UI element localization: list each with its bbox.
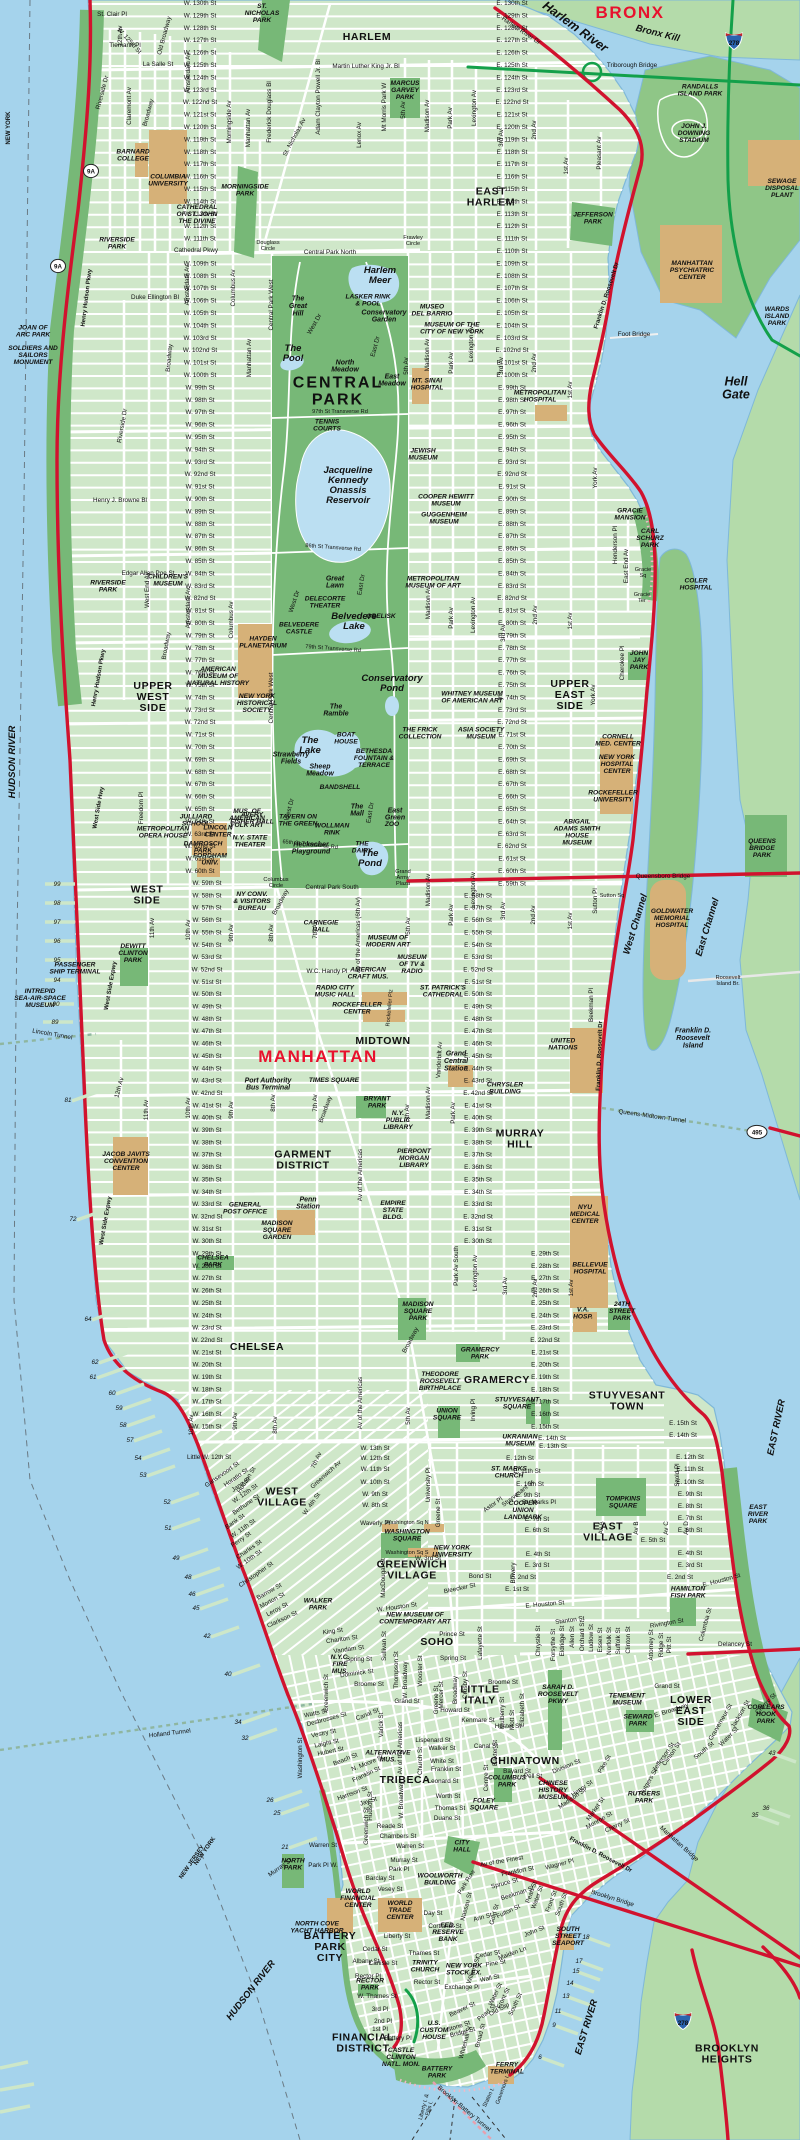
map-label: E. 22nd St [530, 1337, 560, 1344]
map-label: Walker St [428, 1745, 455, 1752]
map-label: Av B [633, 1521, 640, 1534]
map-label: GRACIEMANSION [614, 508, 645, 522]
map-label: BROOKLYNHEIGHTS [695, 2043, 759, 2066]
map-label: Park Av [448, 351, 455, 373]
map-label: WORLDFINANCIALCENTER [340, 1888, 376, 1909]
map-label: CHINATOWN [490, 1755, 560, 1767]
map-label: E. 82nd St [497, 595, 527, 602]
map-label: 3rd Pl [372, 2006, 388, 2013]
map-label: W. 26th St [192, 1288, 221, 1295]
map-label: W. 122nd St [183, 99, 218, 106]
map-label: E. 113th St [497, 211, 528, 218]
map-label: WHITNEY MUSEUMOF AMERICAN ART [441, 691, 503, 705]
map-label: W. 25th St [192, 1300, 221, 1307]
map-label: Lexington Av [471, 89, 478, 126]
map-label: W. Thames St [357, 1993, 397, 2000]
map-label: W. 75th St [185, 682, 214, 689]
map-label: W. 45th St [192, 1053, 221, 1060]
map-label: 5th Av [405, 916, 412, 934]
map-label: E. 55th St [464, 929, 492, 936]
map-label: W. 72nd St [185, 719, 216, 726]
map-label: Rector Pl [355, 1973, 381, 1980]
map-label: 54 [134, 1455, 142, 1462]
map-label: Orchard St [579, 1621, 586, 1652]
map-label: WARDSISLANDPARK [765, 306, 790, 327]
map-label: Av of the Americas [397, 1722, 404, 1774]
map-label: E. 129th St [496, 12, 527, 19]
map-label: W. 86th St [185, 546, 214, 553]
map-label: 49 [172, 1555, 180, 1562]
map-label: Warren St [396, 1843, 424, 1850]
map-label: Hester St [495, 1723, 521, 1730]
map-label: W. 82nd St [185, 595, 216, 602]
map-label: WOOLWORTHBUILDING [418, 1873, 463, 1887]
map-label: W. 37th St [192, 1152, 221, 1159]
map-label: E. 78th St [498, 645, 526, 652]
map-label: E. 103rd St [496, 335, 528, 342]
map-label: W. 57th St [192, 905, 221, 912]
map-label: 34 [234, 1719, 242, 1726]
map-label: Lenox Av [356, 121, 363, 148]
map-label: W. 20th St [192, 1362, 221, 1369]
map-label: GRAMERCY [464, 1374, 530, 1386]
map-label: W. 9th St [362, 1491, 388, 1498]
map-label: HUDSON RIVER [7, 725, 18, 798]
map-label: W. 61st St [186, 856, 215, 863]
map-label: W. 15th St [192, 1423, 221, 1430]
map-label: W. 54th St [192, 942, 221, 949]
map-label: 43 [768, 1750, 776, 1757]
map-label: W. 95th St [185, 434, 214, 441]
map-label: CHINESEHISTORYMUSEUM [538, 1780, 568, 1801]
map-label: Vesey St [378, 1886, 403, 1893]
map-label: E. 102nd St [496, 347, 529, 354]
map-label: E. 5th St [641, 1537, 665, 1544]
map-label: E. 35th St [464, 1176, 492, 1183]
map-label: JEWISHMUSEUM [408, 448, 438, 462]
map-label: W. 27th St [192, 1275, 221, 1282]
map-label: E. 108th St [496, 273, 527, 280]
map-label: W. 96th St [185, 422, 214, 429]
map-label: E. 44th St [464, 1065, 492, 1072]
map-label: Elizabeth St [519, 1693, 526, 1727]
map-label: Lexington Av [472, 1254, 479, 1291]
svg-text:495: 495 [752, 1129, 763, 1136]
map-label: E. 65th St [498, 806, 526, 813]
map-label: THEODOREROOSEVELTBIRTHPLACE [419, 1371, 462, 1392]
map-label: 11 [555, 2008, 562, 2015]
map-label: 8th Av [272, 1415, 279, 1433]
map-label: E. 10th St [676, 1479, 704, 1486]
map-label: W. 35th St [192, 1176, 221, 1183]
map-label: 12th Av [117, 25, 124, 47]
columbia-university-bldg [149, 130, 187, 204]
map-label: University Pl [425, 1468, 432, 1503]
map-label: W. 68th St [185, 769, 214, 776]
map-label: Forsythe St [550, 1629, 557, 1661]
map-label: Spring St [346, 1656, 372, 1663]
map-label: Park Av [450, 1101, 457, 1123]
map-label: Morningside Av [226, 100, 233, 144]
map-label: Cortlandt St [428, 1923, 461, 1930]
map-label: Liberty St [384, 1933, 411, 1940]
map-label: PIERPONTMORGANLIBRARY [397, 1148, 432, 1169]
map-label: Prince St [439, 1631, 465, 1638]
map-label: W.C. Handy Pl [307, 968, 348, 975]
map-label: E. 6th St [525, 1527, 549, 1534]
map-label: NORTH COVEYACHT HARBOR [291, 1921, 344, 1935]
map-label: 25 [272, 1810, 281, 1817]
map-label: BOATHOUSE [334, 732, 358, 746]
map-label: E. 124th St [496, 74, 527, 81]
map-label: St. Clair Pl [97, 11, 127, 18]
map-label: Central Park West [268, 279, 275, 330]
map-label: Freedom Pl [138, 792, 145, 825]
map-label: E. 12th St [506, 1455, 534, 1462]
map-label: HAMILTONFISH PARK [670, 1586, 706, 1600]
map-label: E. 37th St [464, 1152, 492, 1159]
map-label: Greene St [435, 1498, 442, 1527]
map-label: Murray St [390, 1857, 418, 1864]
map-label: W. 85th St [185, 558, 214, 565]
map-label: Canal St [474, 1743, 498, 1750]
map-label: Sutton Sq [600, 893, 625, 899]
manhattan-map[interactable]: BRONXMANHATTANHARLEMEASTHARLEMUPPERWESTS… [0, 0, 800, 2140]
svg-text:278: 278 [729, 40, 740, 47]
map-label: 8th Av [268, 923, 275, 941]
map-label: Park Pl W. [308, 1862, 338, 1869]
map-label: 7th Av [312, 920, 319, 938]
map-label: Washington St [297, 1737, 304, 1778]
map-label: WESTSIDE [131, 884, 164, 907]
map-label: MT. SINAIHOSPITAL [411, 378, 444, 392]
map-label: W. 33rd St [192, 1201, 222, 1208]
map-label: 97th St Transverse Rd [312, 409, 368, 415]
map-label: W. 48th St [192, 1016, 221, 1023]
map-label: TRINITYCHURCH [411, 1960, 440, 1974]
map-label: E. 80th St [498, 620, 526, 627]
map-label: W. 128th St [184, 25, 217, 32]
morningside-park [234, 166, 258, 258]
map-label: E. 118th St [497, 149, 528, 156]
map-label: E. 104th St [496, 322, 527, 329]
map-label: W. 60th St [185, 868, 214, 875]
map-label: Spring St [440, 1655, 466, 1662]
map-label: W. 80th St [185, 620, 214, 627]
map-label: 2nd Av [532, 605, 539, 625]
map-label: E. 14th St [538, 1435, 566, 1442]
map-label: UNITEDNATIONS [548, 1038, 578, 1052]
map-label: E. 86th St [498, 546, 526, 553]
map-label: E. 119th St [497, 136, 528, 143]
map-label: UKRANIANMUSEUM [502, 1434, 537, 1448]
map-label: Park Av [448, 903, 455, 925]
map-label: METROPOLITANMUSEUM OF ART [405, 576, 461, 590]
map-label: 9th Av [232, 1411, 239, 1429]
map-label: Chrystie St [535, 1625, 542, 1656]
map-label: 10th Av [185, 1097, 192, 1119]
map-label: ROCKEFELLERUNIVERSITY [588, 790, 638, 804]
map-label: W. 55th St [192, 929, 221, 936]
map-label: 3rd Av [500, 901, 507, 920]
map-label: E. 110th St [497, 248, 528, 255]
map-label: 9th Av [228, 923, 235, 941]
map-label: E. 127th St [496, 37, 527, 44]
map-label: Church St [417, 1747, 424, 1775]
goldwater-hospital-bldg [650, 880, 686, 980]
map-label: MANHATTAN [258, 1047, 378, 1066]
map-label: 7th Av [312, 1093, 319, 1111]
map-label: Cherokee Pl [619, 646, 626, 681]
map-label: E. 15th St [669, 1420, 697, 1427]
map-label: MacDougal St [380, 1558, 387, 1598]
map-label: BANDSHELL [320, 784, 361, 791]
map-label: NEW YORK [6, 111, 12, 145]
map-label: Crosby St [462, 1671, 469, 1699]
map-label: E. 59th St [498, 880, 526, 887]
metropolitan-hospital-bldg [535, 405, 567, 421]
map-label: E. 96th St [498, 422, 526, 429]
map-label: York Av [590, 684, 597, 706]
map-label: W. 130th St [184, 0, 217, 7]
map-label: W. 30th St [192, 1238, 221, 1245]
map-label: Lispenard St [415, 1737, 451, 1744]
map-label: 9th Av [228, 1100, 235, 1118]
map-label: W. 13th St [360, 1445, 389, 1452]
map-label: 97 [53, 919, 61, 926]
map-label: Broome St [354, 1681, 384, 1688]
map-label: Central Park North [304, 249, 357, 256]
map-label: W. 81st St [186, 608, 215, 615]
map-label: W. 113th St [184, 211, 216, 218]
map-label: La Salle St [143, 61, 174, 68]
map-label: 26 [265, 1797, 274, 1804]
map-label: W. 94th St [185, 446, 214, 453]
map-label: W. 91st St [186, 484, 215, 491]
map-label: MADISONSQUAREGARDEN [261, 1220, 292, 1241]
map-label: Centre St [483, 1764, 490, 1791]
map-label: W. 21st St [193, 1349, 222, 1356]
map-label: W. 18th St [192, 1386, 221, 1393]
map-label: W. 105th St [184, 310, 217, 317]
map-label: E. 21st St [531, 1349, 559, 1356]
map-label: E. 97th St [498, 409, 526, 416]
map-label: E. 30th St [464, 1238, 492, 1245]
map-label: W. 40th St [192, 1115, 221, 1122]
map-label: E. 91st St [498, 484, 526, 491]
map-label: W. 70th St [185, 744, 214, 751]
map-label: E. 116th St [497, 174, 528, 181]
map-label: E. 106th St [496, 298, 527, 305]
map-label: Columbus Av [230, 269, 237, 307]
map-label: E. 3rd St [678, 1562, 703, 1569]
map-label: E. 4th St [678, 1550, 702, 1557]
map-label: TOMPKINSSQUARE [606, 1496, 641, 1510]
map-label: E. 46th St [464, 1041, 492, 1048]
map-label: E. 69th St [498, 756, 526, 763]
map-label: Madison Av [425, 586, 432, 619]
map-label: Columbus Av [228, 601, 235, 639]
map-label: Cedar St [363, 1946, 388, 1953]
map-label: 1st Av [563, 157, 570, 175]
map-label: UNIONSQUARE [433, 1408, 462, 1422]
map-label: E. 95th St [498, 434, 526, 441]
map-label: Park Av South [453, 1246, 460, 1286]
map-label: W. 84th St [185, 570, 214, 577]
map-label: E. 34th St [464, 1189, 492, 1196]
map-label: W. 59th St [192, 880, 221, 887]
map-label: HellGate [722, 375, 750, 402]
map-label: W. 107th St [184, 285, 217, 292]
map-label: E. 27th St [531, 1275, 559, 1282]
map-label: Varick St [378, 1712, 385, 1737]
map-label: METROPOLITANOPERA HOUSE [137, 826, 189, 840]
map-label: 1st Av [567, 612, 574, 630]
map-label: E. 93rd St [498, 459, 526, 466]
map-label: BRONX [596, 3, 665, 22]
map-label: W. 53rd St [192, 954, 222, 961]
map-label: E. 12th St [676, 1454, 704, 1461]
map-label: E. 13th St [539, 1443, 567, 1450]
map-label: 42 [203, 1633, 211, 1640]
map-label: E. 61st St [498, 856, 526, 863]
map-label: NY CONV.& VISITORSBUREAU [233, 891, 271, 912]
map-label: W. 10th St [360, 1479, 389, 1486]
map-label: E. 74th St [498, 694, 526, 701]
map-label: W. 77th St [185, 657, 214, 664]
map-label: W. 58th St [192, 892, 221, 899]
map-label: E. 60th St [498, 868, 526, 875]
map-label: W. 102nd St [183, 347, 218, 354]
map-label: W. 36th St [192, 1164, 221, 1171]
map-label: Greenwich St [363, 1807, 370, 1845]
map-label: 1st Av [568, 1279, 575, 1297]
map-label: E. 107th St [496, 285, 527, 292]
map-label: E. 3rd St [525, 1562, 550, 1569]
map-label: GARMENTDISTRICT [274, 1149, 331, 1172]
map-label: Triborough Bridge [607, 62, 658, 69]
map-label: Pleasant Av [596, 136, 603, 170]
map-label: Henry J. Browne Bl [93, 497, 147, 504]
map-label: 9 [552, 2022, 556, 2029]
map-label: CHELSEA [230, 1341, 284, 1353]
map-label: 1st Av [567, 381, 574, 399]
map-label: W. 42nd St [192, 1090, 223, 1097]
map-label: Eldridge St [559, 1625, 566, 1656]
map-label: Norfolk St [606, 1627, 613, 1655]
map-label: E. 77th St [498, 657, 526, 664]
map-label: Park Av [448, 606, 455, 628]
map-label: E. 87th St [498, 533, 526, 540]
map-label: MUSEUM OF THECITY OF NEW YORK [420, 322, 485, 336]
map-label: Grand St [394, 1698, 419, 1705]
map-label: 2nd Pl [374, 2018, 392, 2025]
map-label: E. 67th St [498, 781, 526, 788]
map-label: Day St [424, 1910, 443, 1917]
map-label: Queensboro Bridge [636, 873, 691, 880]
map-label: E. 88th St [498, 521, 526, 528]
map-label: Martin Luther King Jr. Bl [332, 63, 399, 70]
map-label: E. 128th St [496, 25, 527, 32]
map-label: Wooster St [417, 1655, 424, 1686]
map-label: W. 71st St [186, 732, 215, 739]
map-label: 58 [119, 1422, 127, 1429]
map-label: Henderson Pl [612, 526, 619, 564]
svg-text:9A: 9A [54, 263, 62, 270]
map-label: W. 74th St [185, 694, 214, 701]
map-label: W. 93rd St [185, 459, 215, 466]
map-label: E. 24th St [531, 1312, 559, 1319]
map-label: W. 3rd St [415, 1555, 441, 1562]
map-label: E. 11th St [513, 1468, 540, 1475]
map-label: White St [430, 1758, 454, 1765]
map-label: Broome St [488, 1679, 518, 1686]
map-label: Av C [663, 1521, 670, 1535]
map-label: Mercer St [438, 1681, 445, 1709]
map-label: W. 104th St [184, 322, 217, 329]
map-label: W. 31st St [193, 1226, 222, 1233]
map-label: W. 125th St [184, 62, 217, 69]
map-label: E. 123rd St [496, 87, 528, 94]
map-label: E. 47th St [464, 1028, 492, 1035]
map-label: Clinton St [625, 1626, 632, 1654]
map-label: E. 84th St [498, 570, 526, 577]
map-label: Pell St [524, 1773, 542, 1780]
map-label: 1st Av [567, 912, 574, 930]
map-label: TheMall [350, 803, 365, 817]
map-label: 62 [91, 1359, 99, 1366]
map-label: Chambers St [380, 1833, 417, 1840]
map-label: E. 81st St [498, 608, 526, 615]
map-label: 5th Av [400, 100, 407, 118]
map-label: TIMES SQUARE [309, 1077, 360, 1084]
map-label: E. 85th St [498, 558, 526, 565]
map-label: W. 78th St [185, 645, 214, 652]
map-label: W. 32nd St [192, 1213, 223, 1220]
map-label: East End Av [623, 548, 630, 583]
map-label: GreatLawn [326, 575, 345, 589]
map-label: THE FRICKCOLLECTION [399, 727, 442, 741]
map-label: 51 [164, 1525, 171, 1532]
map-label: ST. PATRICK'SCATHEDRAL [420, 985, 466, 999]
map-label: W. 97th St [185, 409, 214, 416]
map-label: W. 100th St [184, 372, 217, 379]
map-label: E. 105th St [496, 310, 527, 317]
map-label: E. 51st St [464, 979, 492, 986]
map-label: W. 62nd St [185, 843, 216, 850]
map-label: E. 9th St [678, 1491, 702, 1498]
map-label: W. 124th St [184, 74, 217, 81]
map-label: W. 92nd St [185, 471, 216, 478]
map-label: W. 23rd St [192, 1325, 222, 1332]
map-label: W. 34th St [192, 1189, 221, 1196]
map-label: E. 19th St [531, 1374, 559, 1381]
map-label: RADIO CITYMUSIC HALL [315, 985, 356, 999]
map-label: W. 50th St [192, 991, 221, 998]
map-label: W. 19th St [192, 1374, 221, 1381]
map-label: Madison Av [424, 99, 431, 132]
map-label: TENEMENTMUSEUM [609, 1693, 646, 1707]
map-label: E. 54th St [464, 942, 492, 949]
map-label: MUS. OFAMERICANFOLK ART [228, 808, 265, 829]
map-label: E. 99th St [498, 384, 526, 391]
map-label: E. 14th St [669, 1432, 697, 1439]
map-label: Beekman Pl [588, 988, 595, 1022]
map-label: 36 [762, 1805, 770, 1812]
map-label: W. 46th St [192, 1041, 221, 1048]
map-label: W. 115th St [184, 186, 216, 193]
map-label: OBELISK [366, 613, 397, 620]
